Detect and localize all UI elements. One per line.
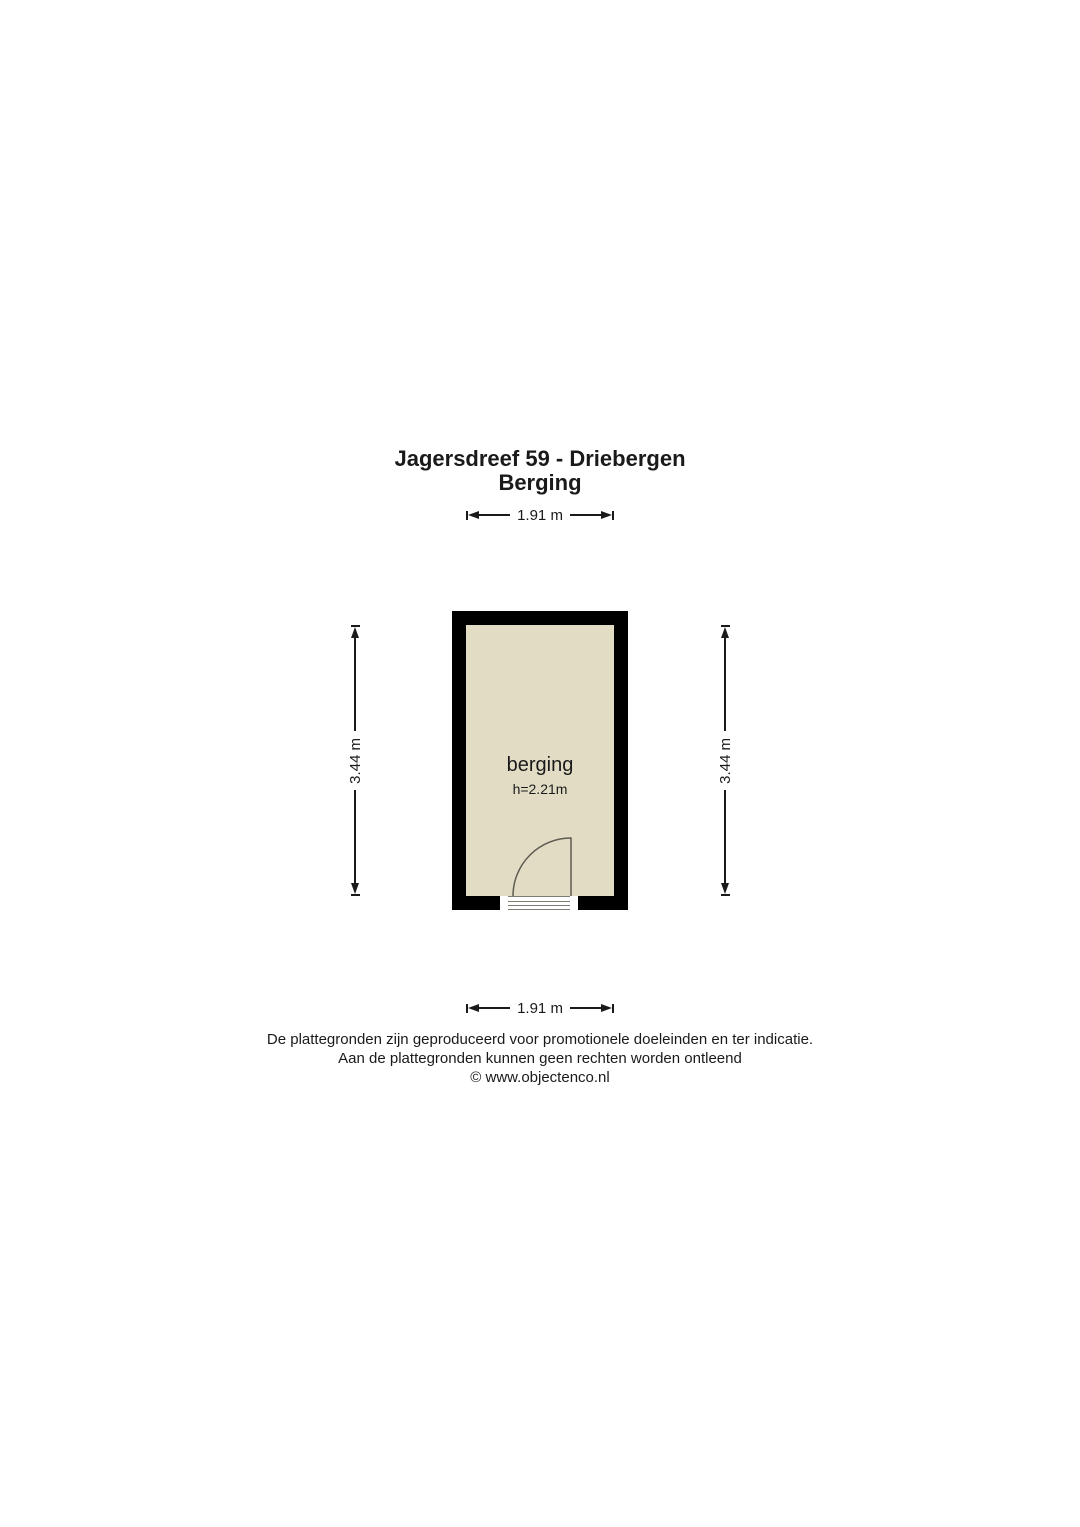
door-swing-icon bbox=[508, 833, 578, 899]
arrow-up-icon bbox=[351, 627, 359, 638]
title-block: Jagersdreef 59 - Driebergen Berging bbox=[0, 447, 1080, 495]
dimension-line bbox=[724, 638, 726, 731]
dimension-tick bbox=[351, 894, 360, 896]
threshold-line bbox=[508, 901, 570, 902]
dimension-top-width: 1.91 m bbox=[466, 507, 614, 523]
dimension-line bbox=[479, 514, 510, 516]
floorplan-walls: berging h=2.21m bbox=[452, 611, 628, 910]
threshold-line bbox=[508, 905, 570, 906]
dimension-line bbox=[724, 790, 726, 883]
room-name-label: berging bbox=[466, 753, 614, 777]
page-subtitle: Berging bbox=[0, 471, 1080, 495]
floorplan-page: Jagersdreef 59 - Driebergen Berging 1.91… bbox=[0, 0, 1080, 1527]
arrow-right-icon bbox=[601, 1004, 612, 1012]
disclaimer-line-2: Aan de plattegronden kunnen geen rechten… bbox=[0, 1049, 1080, 1068]
dimension-label: 3.44 m bbox=[347, 738, 364, 784]
dimension-label: 1.91 m bbox=[517, 1000, 563, 1017]
arrow-left-icon bbox=[468, 1004, 479, 1012]
arrow-up-icon bbox=[721, 627, 729, 638]
room-ceiling-height-label: h=2.21m bbox=[466, 781, 614, 797]
room-labels: berging h=2.21m bbox=[466, 753, 614, 797]
dimension-line bbox=[570, 514, 601, 516]
dimension-line bbox=[570, 1007, 601, 1009]
dimension-tick bbox=[612, 511, 614, 520]
dimension-right-height: 3.44 m bbox=[717, 625, 733, 896]
dimension-label: 3.44 m bbox=[717, 738, 734, 784]
door-arc-path bbox=[513, 838, 571, 896]
copyright-line: © www.objectenco.nl bbox=[0, 1068, 1080, 1087]
dimension-label: 1.91 m bbox=[517, 507, 563, 524]
dimension-line bbox=[354, 638, 356, 731]
dimension-left-height: 3.44 m bbox=[347, 625, 363, 896]
arrow-down-icon bbox=[721, 883, 729, 894]
disclaimer: De plattegronden zijn geproduceerd voor … bbox=[0, 1030, 1080, 1087]
arrow-left-icon bbox=[468, 511, 479, 519]
dimension-line bbox=[479, 1007, 510, 1009]
dimension-tick bbox=[612, 1004, 614, 1013]
disclaimer-line-1: De plattegronden zijn geproduceerd voor … bbox=[0, 1030, 1080, 1049]
dimension-line bbox=[354, 790, 356, 883]
arrow-down-icon bbox=[351, 883, 359, 894]
arrow-right-icon bbox=[601, 511, 612, 519]
dimension-tick bbox=[721, 894, 730, 896]
page-title: Jagersdreef 59 - Driebergen bbox=[0, 447, 1080, 471]
dimension-bottom-width: 1.91 m bbox=[466, 1000, 614, 1016]
